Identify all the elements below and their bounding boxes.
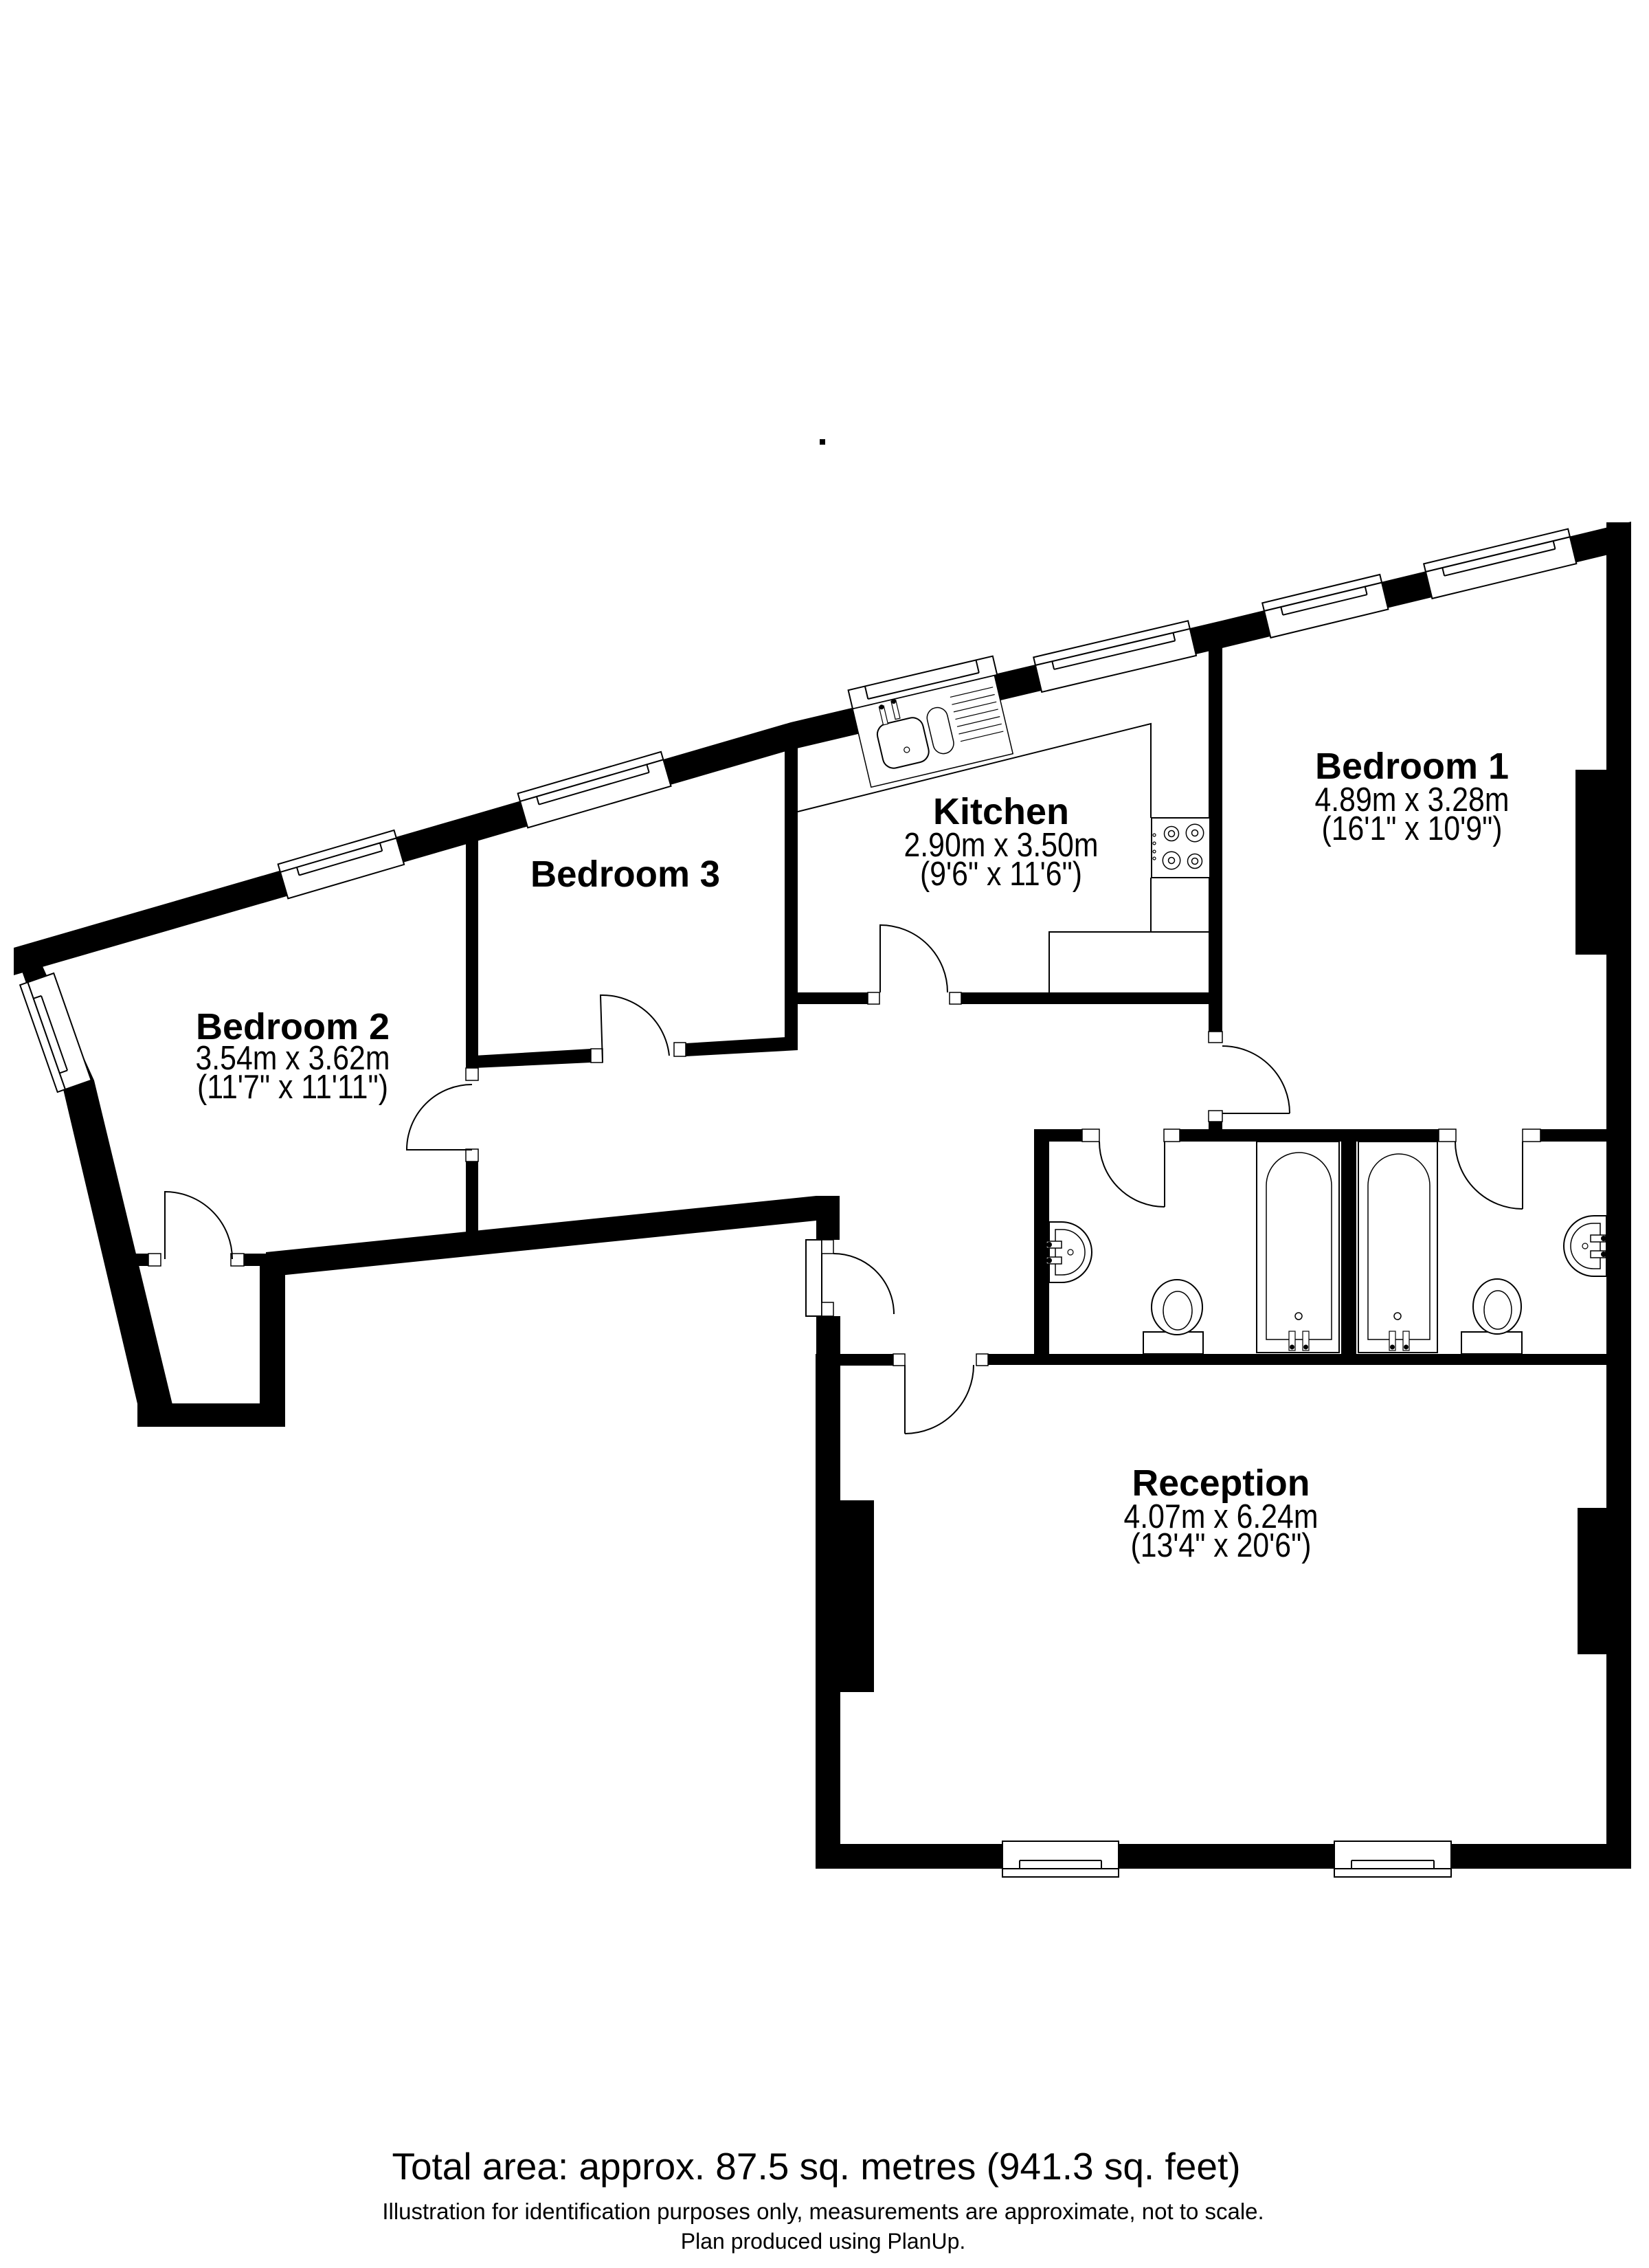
- svg-text:(9'6" x 11'6"): (9'6" x 11'6"): [920, 856, 1082, 893]
- svg-text:Bedroom 1: Bedroom 1: [1315, 746, 1509, 787]
- svg-text:Bedroom 3: Bedroom 3: [530, 854, 720, 895]
- svg-text:Plan produced using PlanUp.: Plan produced using PlanUp.: [681, 2229, 966, 2254]
- svg-text:(13'4" x 20'6"): (13'4" x 20'6"): [1131, 1527, 1312, 1564]
- svg-text:Reception: Reception: [1132, 1463, 1310, 1504]
- svg-text:Illustration for identificatio: Illustration for identification purposes…: [382, 2199, 1264, 2224]
- svg-text:(11'7" x 11'11"): (11'7" x 11'11"): [197, 1069, 388, 1106]
- svg-text:Kitchen: Kitchen: [933, 791, 1069, 832]
- svg-text:(16'1" x 10'9"): (16'1" x 10'9"): [1322, 810, 1503, 847]
- svg-text:Total area: approx. 87.5 sq. m: Total area: approx. 87.5 sq. metres (941…: [392, 2145, 1240, 2188]
